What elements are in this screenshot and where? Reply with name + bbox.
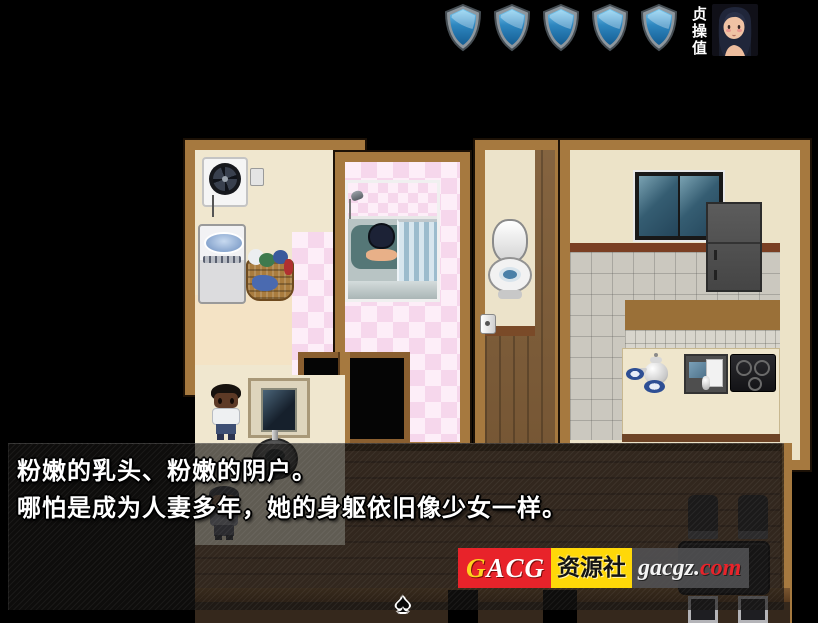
washing-machine[interactable] xyxy=(198,224,246,304)
boy-leg xyxy=(228,434,235,440)
portrait xyxy=(712,4,758,56)
watermark-domain: gacgz.com xyxy=(632,548,749,588)
watermark-brand: GACG xyxy=(458,548,551,588)
bathing-woman-shoulders xyxy=(366,249,397,261)
shield-icon xyxy=(539,3,583,53)
kitchen-inner-wall xyxy=(625,300,780,333)
laundry-red xyxy=(284,259,293,275)
boy-eye xyxy=(230,398,234,404)
shield-icon xyxy=(490,3,534,53)
bathtub-unit xyxy=(345,180,440,302)
boy-character[interactable] xyxy=(210,384,242,440)
watermark-domain-white: gacgz. xyxy=(638,555,700,581)
dialogue-line-2: 哪怕是成为人妻多年，她的身躯依旧像少女一样。 xyxy=(17,490,784,527)
woman-portrait-icon xyxy=(712,4,758,56)
refrigerator[interactable] xyxy=(706,202,762,292)
watermark-middle: 资源社 xyxy=(551,548,632,588)
shield-icon xyxy=(637,3,681,53)
toilet-water xyxy=(503,270,517,279)
toilet[interactable] xyxy=(488,257,532,293)
watermark-brand-g: G xyxy=(466,553,487,583)
window-pane xyxy=(639,176,680,236)
shower-hose xyxy=(349,199,351,219)
washer-controls xyxy=(203,256,241,263)
watermark-brand-rest: ACG xyxy=(487,553,546,583)
watermark: GACG 资源社 gacgz.com xyxy=(458,548,749,588)
fridge-handle xyxy=(714,250,717,260)
dialogue-line-1: 粉嫩的乳头、粉嫩的阴户。 xyxy=(17,453,784,490)
shower-head xyxy=(350,189,364,202)
counter-trim xyxy=(622,434,780,442)
toilet-base xyxy=(498,290,522,299)
kettle-knob xyxy=(654,353,658,357)
boy-leg xyxy=(217,434,224,440)
paper-hole xyxy=(485,321,490,326)
kettle-lid xyxy=(650,357,662,363)
burner xyxy=(736,360,752,376)
fan-cord xyxy=(212,195,214,217)
washstand-mirror xyxy=(261,388,297,432)
boy-face xyxy=(214,393,238,408)
fan-hub xyxy=(222,176,228,182)
shower-curtain xyxy=(397,219,437,281)
fridge-seam xyxy=(708,242,760,244)
thermos xyxy=(702,376,710,390)
faucet xyxy=(272,430,278,440)
boy-pants xyxy=(216,424,236,434)
shield-icon xyxy=(588,3,632,53)
burner xyxy=(748,377,762,391)
stat-label: 贞操值 xyxy=(688,6,709,57)
fan-housing xyxy=(209,163,241,195)
kitchen-sink xyxy=(684,354,728,394)
stove xyxy=(730,354,776,392)
game-screen[interactable]: 粉嫩的乳头、粉嫩的阴户。 哪怕是成为人妻多年，她的身躯依旧像少女一样。 ♠ GA… xyxy=(0,0,818,623)
fridge-handle xyxy=(714,270,717,280)
burner xyxy=(754,360,770,376)
toilet-paper xyxy=(480,314,496,334)
bathing-woman-head xyxy=(368,223,395,249)
power-outlet xyxy=(250,168,264,186)
teacup xyxy=(644,380,665,393)
teacup xyxy=(626,368,644,380)
boy-shirt xyxy=(212,408,240,425)
exhaust-fan xyxy=(202,157,248,207)
toilet-bowl xyxy=(499,267,521,282)
laundry-basket xyxy=(246,247,294,303)
chastity-shields xyxy=(441,3,681,53)
washer-lid xyxy=(204,232,244,254)
continue-indicator[interactable]: ♠ xyxy=(396,588,410,619)
tub-front xyxy=(348,281,437,299)
washstand xyxy=(248,378,310,438)
boy-eye xyxy=(218,398,222,404)
watermark-domain-red: com xyxy=(700,555,741,581)
laundry-hanging xyxy=(252,275,278,291)
bathtub xyxy=(348,219,437,299)
shield-icon xyxy=(441,3,485,53)
